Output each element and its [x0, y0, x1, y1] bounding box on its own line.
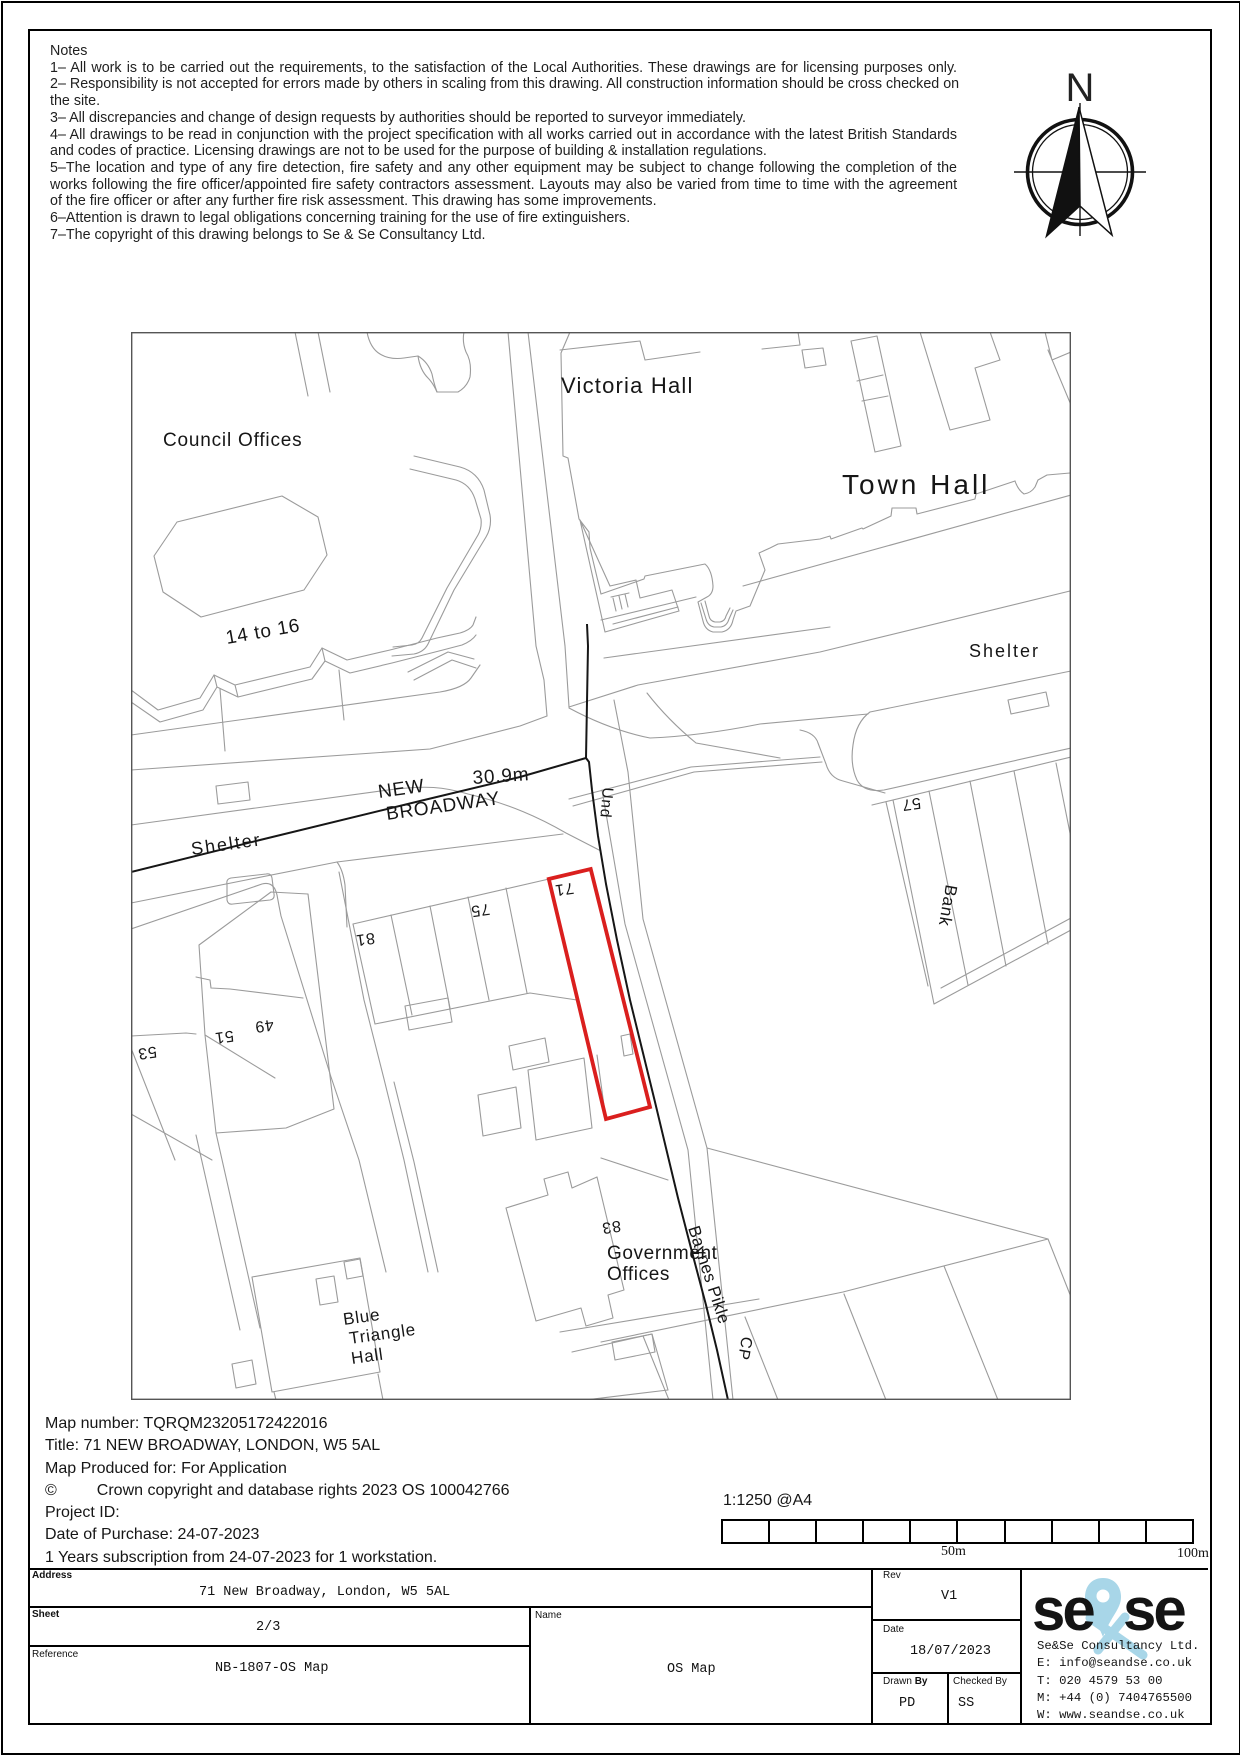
svg-text:57: 57: [900, 794, 922, 814]
svg-text:14 to 16: 14 to 16: [224, 615, 302, 649]
svg-text:81: 81: [354, 929, 376, 949]
svg-text:Council Offices: Council Offices: [163, 430, 302, 451]
svg-text:Shelter: Shelter: [190, 829, 263, 859]
svg-text:30.9m: 30.9m: [472, 764, 530, 789]
svg-text:Victoria Hall: Victoria Hall: [561, 373, 694, 398]
svg-text:75: 75: [469, 900, 491, 920]
svg-text:83: 83: [600, 1217, 622, 1237]
svg-text:71: 71: [553, 879, 575, 899]
svg-text:Bank: Bank: [935, 883, 961, 928]
svg-text:53: 53: [136, 1042, 158, 1062]
svg-text:49: 49: [253, 1016, 275, 1036]
svg-text:CP: CP: [734, 1335, 755, 1361]
svg-text:51: 51: [213, 1027, 235, 1047]
svg-text:Und: Und: [596, 787, 616, 819]
svg-text:se: se: [1032, 1576, 1094, 1643]
svg-text:se: se: [1123, 1576, 1185, 1643]
svg-text:Town Hall: Town Hall: [842, 469, 990, 500]
svg-text:Shelter: Shelter: [969, 641, 1040, 661]
svg-text:Hall: Hall: [350, 1345, 385, 1368]
svg-text:Offices: Offices: [607, 1264, 670, 1285]
